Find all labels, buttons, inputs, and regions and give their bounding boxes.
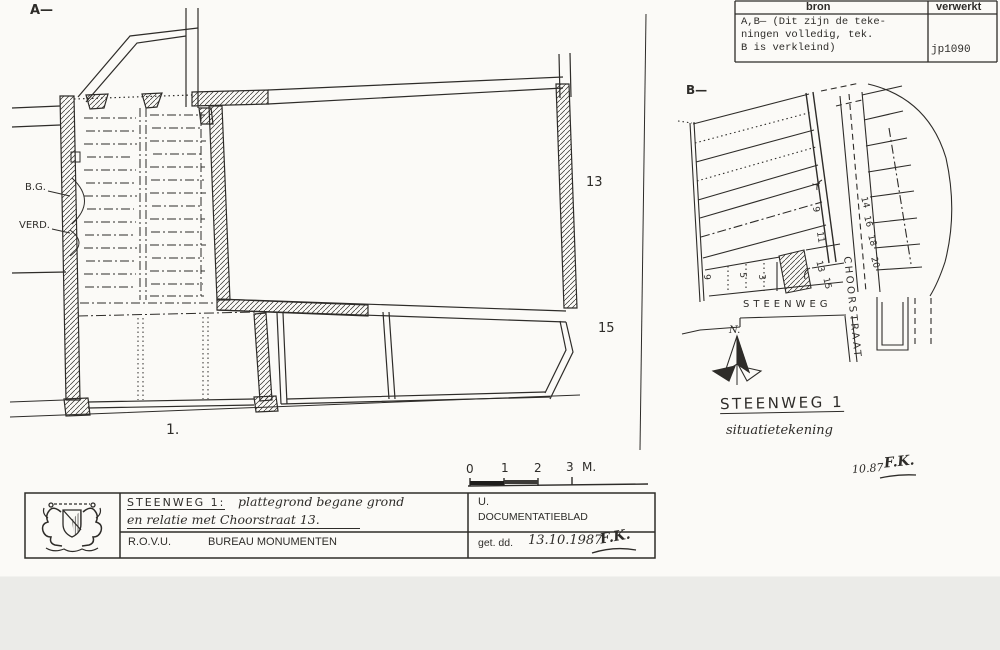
parcel-number: 20 [868, 256, 880, 269]
map-subtitle: situatietekening [726, 424, 833, 437]
drawing-b-label: B— [686, 84, 707, 96]
drawing-a-label: A— [30, 4, 53, 17]
north-label: N. [729, 326, 740, 336]
scale-unit-label: M. [582, 461, 596, 473]
parcel-number: 9 [701, 274, 710, 280]
titleblock-date: 13.10.1987 [528, 534, 602, 547]
parcel-number: 9 [810, 206, 820, 213]
titleblock-handwritten-line2: en relatie met Choorstraat 13. [127, 514, 360, 529]
scale-tick-2: 2 [534, 462, 542, 474]
table-note-line1: A,B— (Dit zijn de teke- [741, 17, 886, 28]
utrecht-crest-logo [43, 503, 102, 552]
parcel-number: 5 [737, 272, 746, 278]
house-number-1-label: 1. [166, 423, 179, 437]
documentatieblad-label: DOCUMENTATIEBLAD [478, 512, 588, 523]
parcel-number: 3 [756, 274, 765, 280]
parcel-number: 15 [820, 277, 832, 290]
floor-plan-linework [10, 8, 646, 450]
map-initials: F.K. [883, 453, 915, 470]
north-arrow-icon [713, 336, 761, 385]
table-header-verwerkt: verwerkt [936, 2, 981, 13]
archive-code: jp1090 [931, 45, 971, 56]
get-dd-label: get. dd. [478, 538, 513, 549]
titleblock-handwritten-title: STEENWEG 1: [127, 497, 225, 510]
titleblock-handwritten-desc: plattegrond begane grond [238, 496, 404, 509]
map-date: 10.87 [852, 462, 884, 475]
parcel-number: 18 [865, 234, 877, 247]
table-note-line2: ningen volledig, tek. [741, 30, 873, 41]
signature-flourishes [592, 475, 916, 553]
map-title: STEENWEG 1 [720, 395, 844, 414]
ground-floor-label: B.G. [25, 183, 46, 193]
steenweg-street-label: STEENWEG [743, 300, 832, 310]
org-label: R.O.V.U. [128, 537, 171, 548]
u-label: U. [478, 497, 489, 508]
neighbour-13-label: 13 [586, 176, 603, 189]
parcel-number: 16 [861, 215, 873, 228]
neighbour-15-label: 15 [598, 322, 615, 335]
parcel-number: 11 [814, 231, 825, 244]
scale-tick-1: 1 [501, 462, 509, 474]
scale-tick-0: 0 [466, 463, 474, 475]
upper-floor-label: VERD. [19, 221, 50, 231]
parcel-number: 13 [813, 260, 825, 273]
table-header-bron: bron [806, 2, 830, 13]
parcel-number: 14 [858, 196, 870, 209]
bureau-label: BUREAU MONUMENTEN [208, 537, 337, 548]
scale-tick-3: 3 [566, 461, 574, 473]
scale-bar [468, 477, 648, 486]
table-note-line3: B is verkleind) [741, 43, 836, 54]
